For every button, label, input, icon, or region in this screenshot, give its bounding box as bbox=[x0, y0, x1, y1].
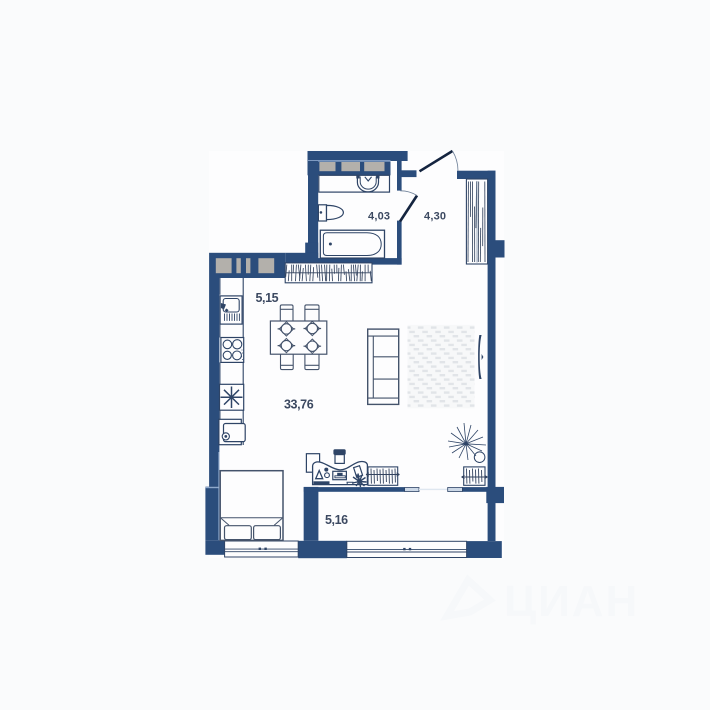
svg-text:5,16: 5,16 bbox=[325, 513, 348, 527]
svg-text:4,03: 4,03 bbox=[368, 211, 390, 223]
svg-text:5,15: 5,15 bbox=[256, 291, 279, 305]
svg-text:4,30: 4,30 bbox=[424, 211, 446, 223]
svg-text:33,76: 33,76 bbox=[284, 398, 314, 412]
svg-text:ЦИАН: ЦИАН bbox=[504, 577, 639, 626]
